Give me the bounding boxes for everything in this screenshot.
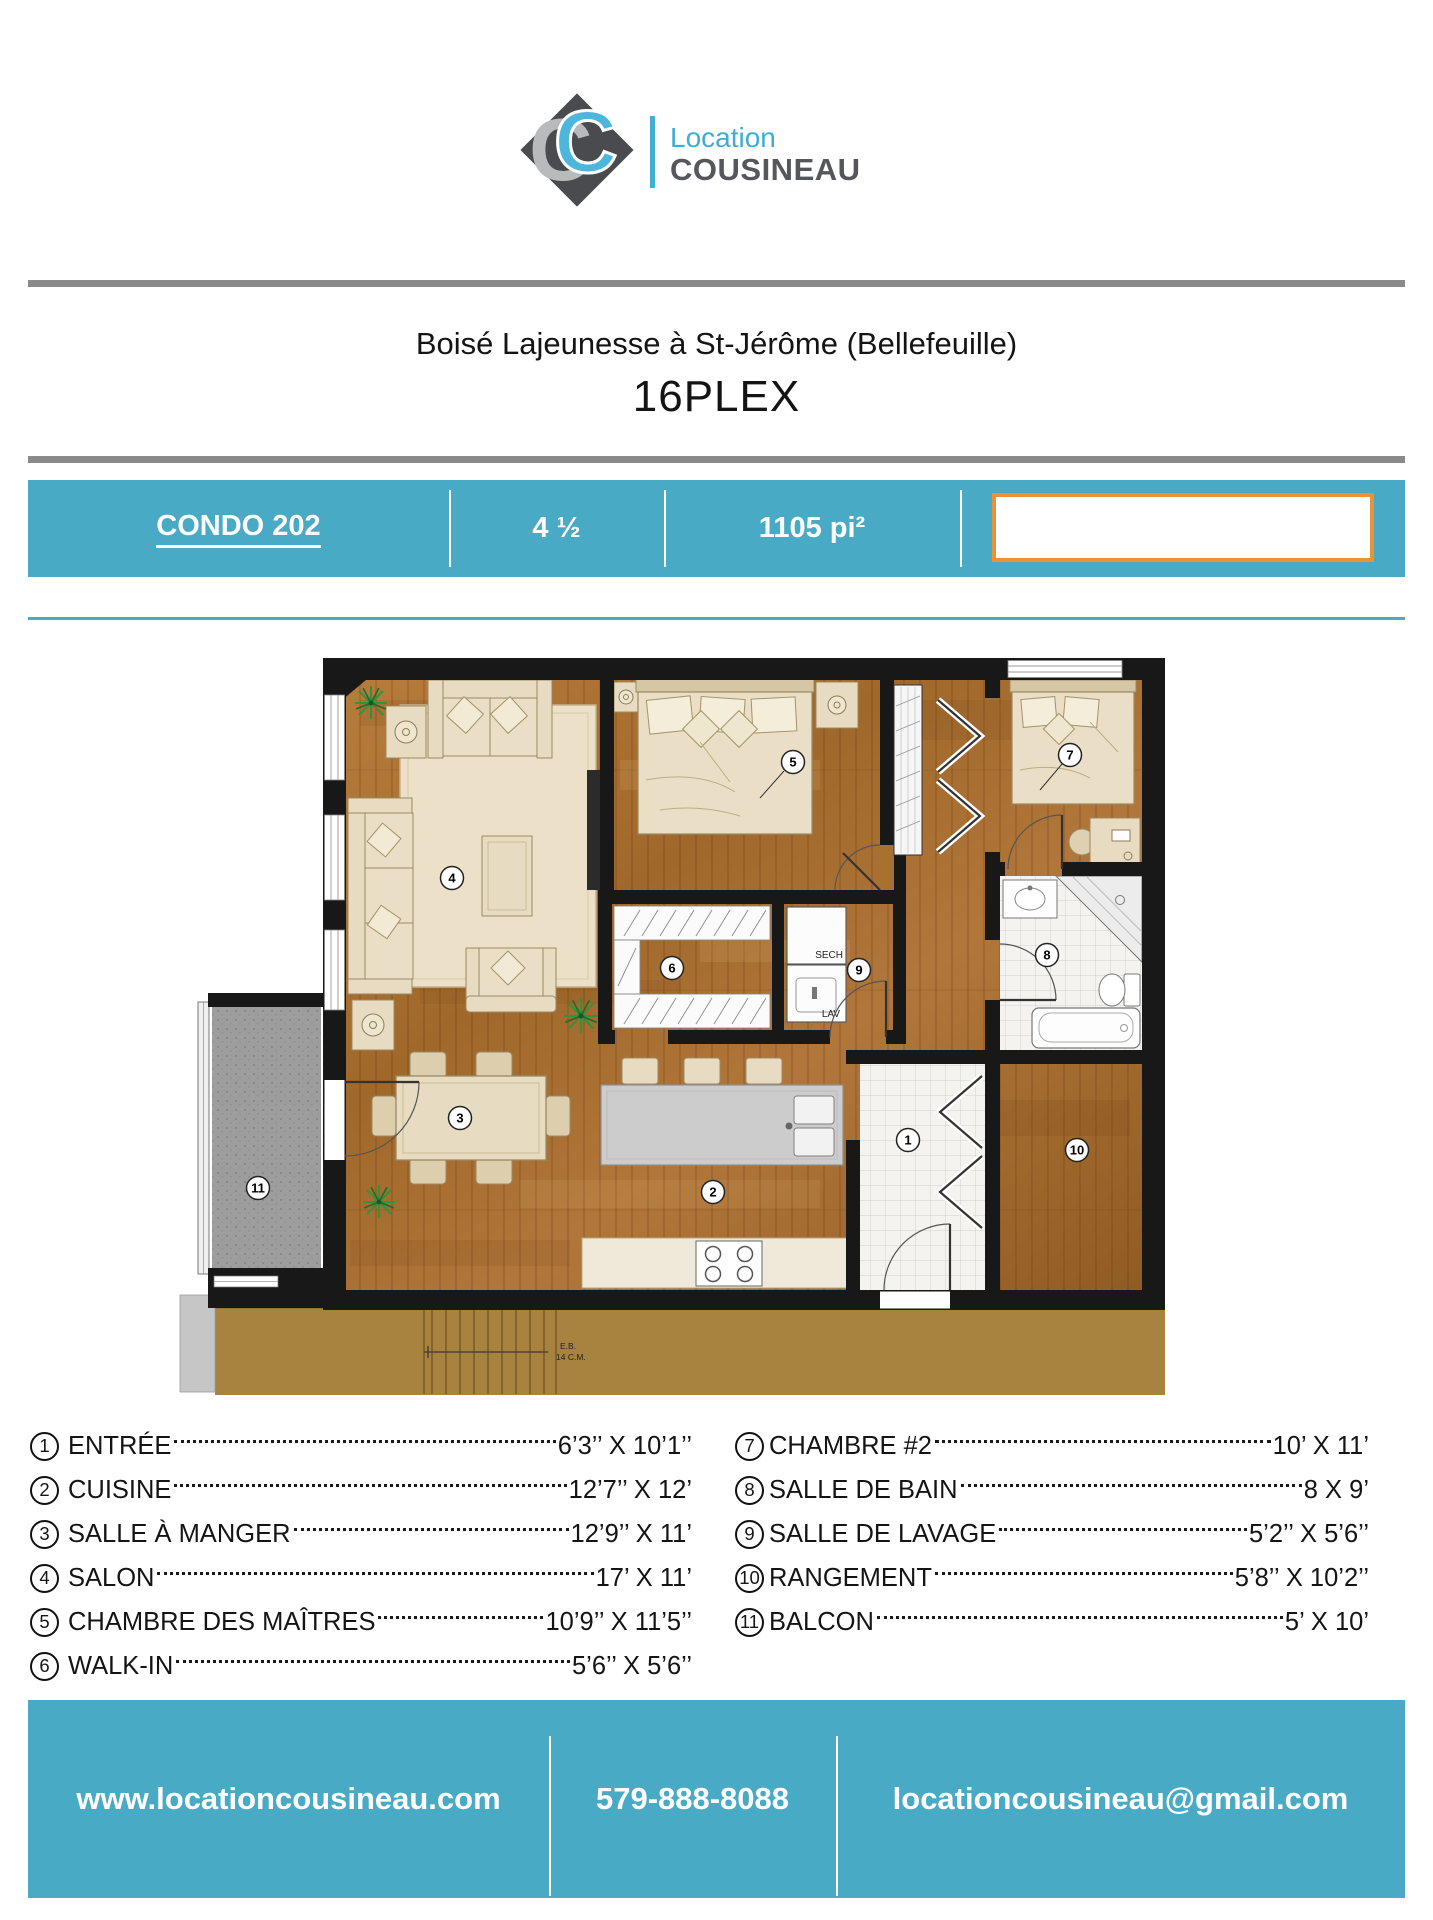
room-dims: 6’3’’ X 10’1’’ — [558, 1432, 692, 1461]
room-name: ENTRÉE — [68, 1432, 171, 1461]
entry-tile-floor — [860, 1064, 985, 1290]
chair — [546, 1096, 570, 1136]
chair — [372, 1096, 396, 1136]
unit-area: 1105 pi² — [664, 480, 960, 577]
footer-email: locationcousineau@gmail.com — [836, 1700, 1405, 1898]
side-walkway — [180, 1295, 215, 1392]
room-number-1: 1 — [897, 1129, 920, 1152]
room-dims: 12’7’’ X 12’ — [569, 1476, 692, 1505]
room-dims: 5’6’’ X 5’6’’ — [572, 1652, 692, 1681]
plant-icon — [356, 687, 386, 718]
washer-label: LAV — [822, 1009, 840, 1020]
room-number-2: 2 — [702, 1181, 725, 1204]
room-number-5: 5 — [782, 751, 805, 774]
svg-text:1: 1 — [904, 1133, 911, 1148]
building-title: 16PLEX — [0, 372, 1433, 422]
dotted-leader — [877, 1616, 1283, 1619]
svg-text:5: 5 — [789, 755, 796, 770]
svg-text:7: 7 — [1066, 748, 1073, 763]
room-number-7: 7 — [1059, 744, 1082, 767]
stove — [696, 1241, 762, 1286]
legend-row: 11BALCON5’ X 10’ — [735, 1600, 1369, 1644]
armchair — [466, 948, 556, 1012]
dotted-leader — [999, 1528, 1247, 1531]
room-dims: 5’ X 10’ — [1285, 1608, 1369, 1637]
sink — [794, 1096, 834, 1124]
dotted-leader — [961, 1484, 1302, 1487]
dotted-leader — [174, 1484, 566, 1487]
bed-headboard — [636, 678, 814, 692]
room-number-6: 6 — [661, 957, 684, 980]
room-name: SALLE DE LAVAGE — [769, 1520, 996, 1549]
logo-brand-line2: COUSINEAU — [670, 152, 861, 188]
chair — [410, 1052, 446, 1078]
sofa — [348, 798, 413, 994]
contact-footer: www.locationcousineau.com 579-888-8088 l… — [28, 1700, 1405, 1898]
room-dims: 8 X 9’ — [1304, 1476, 1369, 1505]
banner-divider — [960, 490, 962, 567]
hall-closet — [894, 685, 922, 855]
plant-icon — [565, 999, 597, 1032]
banner-blank-box — [992, 493, 1374, 562]
dotted-leader — [935, 1572, 1233, 1575]
flyer-page: C C Location COUSINEAU Boisé Lajeunesse … — [0, 0, 1433, 1920]
legend-row: 2CUISINE12’7’’ X 12’ — [30, 1468, 692, 1512]
room-number-3: 3 — [449, 1107, 472, 1130]
room-name: CUISINE — [68, 1476, 171, 1505]
unit-banner: CONDO 202 4 ½ 1105 pi² — [28, 480, 1405, 577]
logo-monogram-front-icon: C — [554, 98, 618, 186]
toilet — [1124, 974, 1140, 1006]
dryer-label: SECH — [815, 950, 843, 961]
dotted-leader — [935, 1440, 1271, 1443]
logo-brand-line1: Location — [670, 122, 776, 154]
stair-note: 14 C.M. — [556, 1352, 586, 1362]
room-name: SALLE À MANGER — [68, 1520, 291, 1549]
legend-column-right: 7CHAMBRE #210’ X 11’ 8SALLE DE BAIN8 X 9… — [735, 1424, 1369, 1644]
laundry-room: SECH LAV — [787, 907, 846, 1022]
legend-row: 10RANGEMENT5’8’’ X 10’2’’ — [735, 1556, 1369, 1600]
room-number-9: 9 — [848, 959, 871, 982]
room-number-11: 11 — [247, 1177, 270, 1200]
legend-row: 9SALLE DE LAVAGE5’2’’ X 5’6’’ — [735, 1512, 1369, 1556]
footer-phone: 579-888-8088 — [549, 1700, 836, 1898]
room-name: CHAMBRE DES MAÎTRES — [68, 1608, 375, 1637]
unit-number: CONDO 202 — [28, 480, 449, 577]
dotted-leader — [174, 1440, 555, 1443]
svg-text:2: 2 — [709, 1185, 716, 1200]
svg-text:10: 10 — [1070, 1143, 1084, 1158]
project-title: Boisé Lajeunesse à St-Jérôme (Bellefeuil… — [0, 326, 1433, 362]
legend-row: 5CHAMBRE DES MAÎTRES10’9’’ X 11’5’’ — [30, 1600, 692, 1644]
stool — [684, 1058, 720, 1084]
room-dims: 12’9’’ X 11’ — [571, 1520, 692, 1549]
svg-text:6: 6 — [668, 961, 675, 976]
room-number-4: 4 — [441, 867, 464, 890]
plant-icon — [364, 1186, 394, 1217]
dotted-leader — [378, 1616, 543, 1619]
unit-size: 4 ½ — [449, 480, 664, 577]
dotted-leader — [176, 1660, 570, 1663]
coffee-table — [482, 836, 532, 916]
room-name: RANGEMENT — [769, 1564, 932, 1593]
room-name: BALCON — [769, 1608, 874, 1637]
legend-row: 1ENTRÉE6’3’’ X 10’1’’ — [30, 1424, 692, 1468]
svg-text:4: 4 — [448, 871, 456, 886]
svg-text:8: 8 — [1043, 948, 1050, 963]
room-number-10: 10 — [1066, 1139, 1089, 1162]
stool — [746, 1058, 782, 1084]
legend-column-left: 1ENTRÉE6’3’’ X 10’1’’ 2CUISINE12’7’’ X 1… — [30, 1424, 692, 1688]
svg-text:9: 9 — [855, 963, 862, 978]
divider-thin-teal — [28, 617, 1405, 620]
side-table-lamp — [386, 706, 426, 758]
room-name: CHAMBRE #2 — [769, 1432, 932, 1461]
side-table-lamp — [352, 1000, 394, 1050]
room-name: WALK-IN — [68, 1652, 173, 1681]
room-dims: 5’2’’ X 5’6’’ — [1249, 1520, 1369, 1549]
svg-text:11: 11 — [251, 1181, 265, 1196]
logo-divider-bar — [650, 116, 655, 188]
legend-row: 6WALK-IN5’6’’ X 5’6’’ — [30, 1644, 692, 1688]
room-dims: 10’9’’ X 11’5’’ — [545, 1608, 692, 1637]
chair — [410, 1158, 446, 1184]
room-dims: 5’8’’ X 10’2’’ — [1235, 1564, 1369, 1593]
loveseat — [428, 680, 552, 758]
legend-row: 7CHAMBRE #210’ X 11’ — [735, 1424, 1369, 1468]
room-name: SALON — [68, 1564, 154, 1593]
room-name: SALLE DE BAIN — [769, 1476, 958, 1505]
divider-top — [28, 280, 1405, 287]
dotted-leader — [157, 1572, 593, 1575]
legend-row: 3SALLE À MANGER12’9’’ X 11’ — [30, 1512, 692, 1556]
dotted-leader — [294, 1528, 569, 1531]
stool — [622, 1058, 658, 1084]
svg-text:3: 3 — [456, 1111, 463, 1126]
desk — [1090, 818, 1140, 866]
chair — [476, 1052, 512, 1078]
legend-row: 8SALLE DE BAIN8 X 9’ — [735, 1468, 1369, 1512]
floorplan-image: E.B. 14 C.M. — [160, 640, 1180, 1410]
legend-row: 4SALON17’ X 11’ — [30, 1556, 692, 1600]
footer-website: www.locationcousineau.com — [28, 1700, 549, 1898]
chair — [476, 1158, 512, 1184]
room-dims: 17’ X 11’ — [596, 1564, 692, 1593]
room-number-8: 8 — [1036, 944, 1059, 967]
tv-console — [587, 770, 600, 890]
stair-note: E.B. — [560, 1341, 576, 1351]
divider-mid — [28, 456, 1405, 463]
room-dims: 10’ X 11’ — [1273, 1432, 1369, 1461]
